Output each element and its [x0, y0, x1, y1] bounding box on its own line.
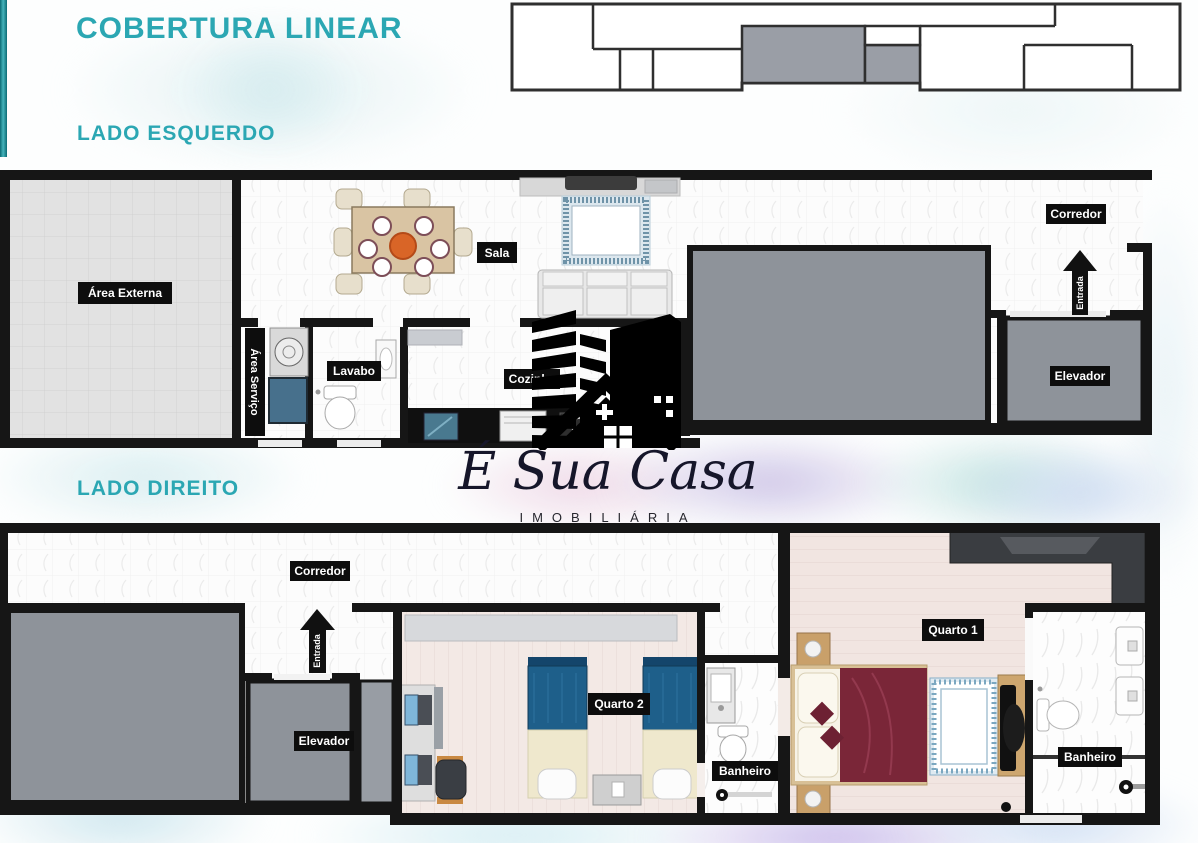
label-banheiro-quarto2: Banheiro: [719, 764, 771, 778]
brand-name: É Sua Casa: [428, 442, 788, 502]
banheiro2-toilet: [718, 726, 748, 763]
label-corredor: Corredor: [294, 564, 346, 578]
rug: [930, 678, 998, 775]
laundry-tank: [269, 378, 307, 423]
label-banheiro-quarto1: Banheiro: [1064, 750, 1116, 764]
left-accent-bar: [0, 0, 7, 157]
section-title-left: LADO ESQUERDO: [77, 122, 276, 146]
entrada-label: Entrada: [1075, 275, 1085, 310]
label-area-servico: Área Serviço: [248, 348, 261, 416]
label-elevador: Elevador: [1055, 369, 1106, 383]
brand-subtitle: IMOBILIÁRIA: [428, 510, 788, 525]
single-bed-2: [643, 657, 702, 799]
banheiro2-sink: [707, 668, 735, 723]
label-lavabo: Lavabo: [333, 364, 375, 378]
tv-stand: [998, 675, 1028, 776]
label-quarto2: Quarto 2: [594, 697, 644, 711]
label-sala: Sala: [485, 246, 510, 260]
desk-chair: [436, 756, 466, 804]
shaft: [360, 681, 393, 803]
section-title-right: LADO DIREITO: [77, 477, 239, 501]
single-bed-1: [528, 657, 587, 799]
label-quarto1: Quarto 1: [928, 623, 978, 637]
tv: [565, 176, 637, 190]
plan-lado-direito: Entrada Corredor Elevador Quarto 2 Banhe…: [0, 523, 1160, 828]
ac-unit: [645, 180, 677, 193]
label-area-externa: Área Externa: [88, 285, 162, 300]
closet-bar: [405, 615, 677, 641]
label-elevador: Elevador: [299, 734, 350, 748]
nightstand: [593, 775, 641, 805]
page-title: COBERTURA LINEAR: [76, 12, 403, 46]
utility-block: [8, 610, 242, 803]
brand-buildings-icon: [518, 300, 698, 450]
wall-picture: [562, 196, 650, 265]
brand-watermark: É Sua Casa IMOBILIÁRIA: [428, 300, 788, 535]
label-corredor: Corredor: [1050, 207, 1102, 221]
entrada-label: Entrada: [312, 633, 322, 668]
laundry-sink: [270, 328, 308, 376]
room-area-externa: [10, 180, 232, 438]
floor-plan-page: COBERTURA LINEAR LADO ESQUERDO LADO DIRE…: [0, 0, 1198, 843]
